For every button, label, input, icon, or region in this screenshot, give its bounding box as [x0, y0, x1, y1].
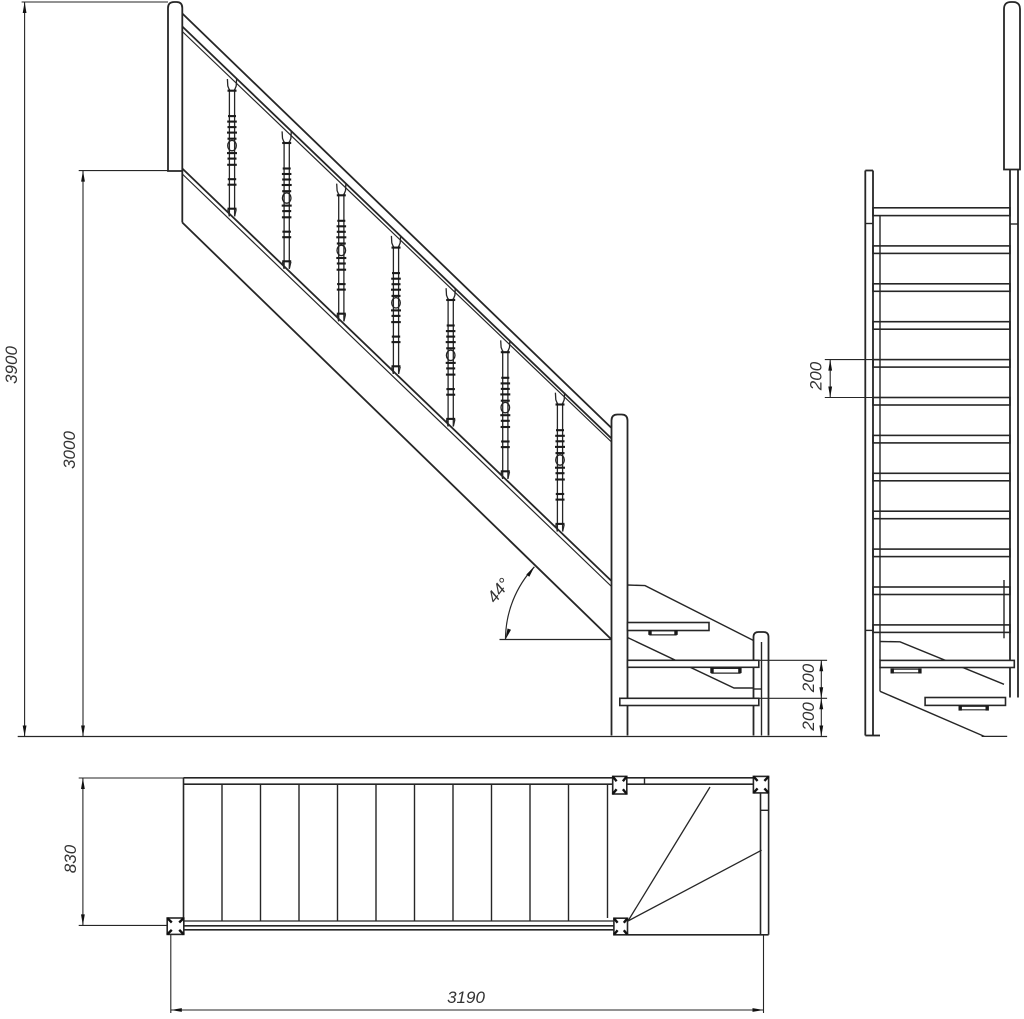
- svg-text:830: 830: [61, 844, 80, 873]
- svg-text:200: 200: [799, 663, 818, 693]
- svg-text:200: 200: [807, 361, 826, 391]
- svg-text:3900: 3900: [2, 346, 21, 384]
- svg-text:3190: 3190: [447, 988, 485, 1007]
- svg-text:3000: 3000: [60, 431, 79, 469]
- svg-text:200: 200: [799, 702, 818, 732]
